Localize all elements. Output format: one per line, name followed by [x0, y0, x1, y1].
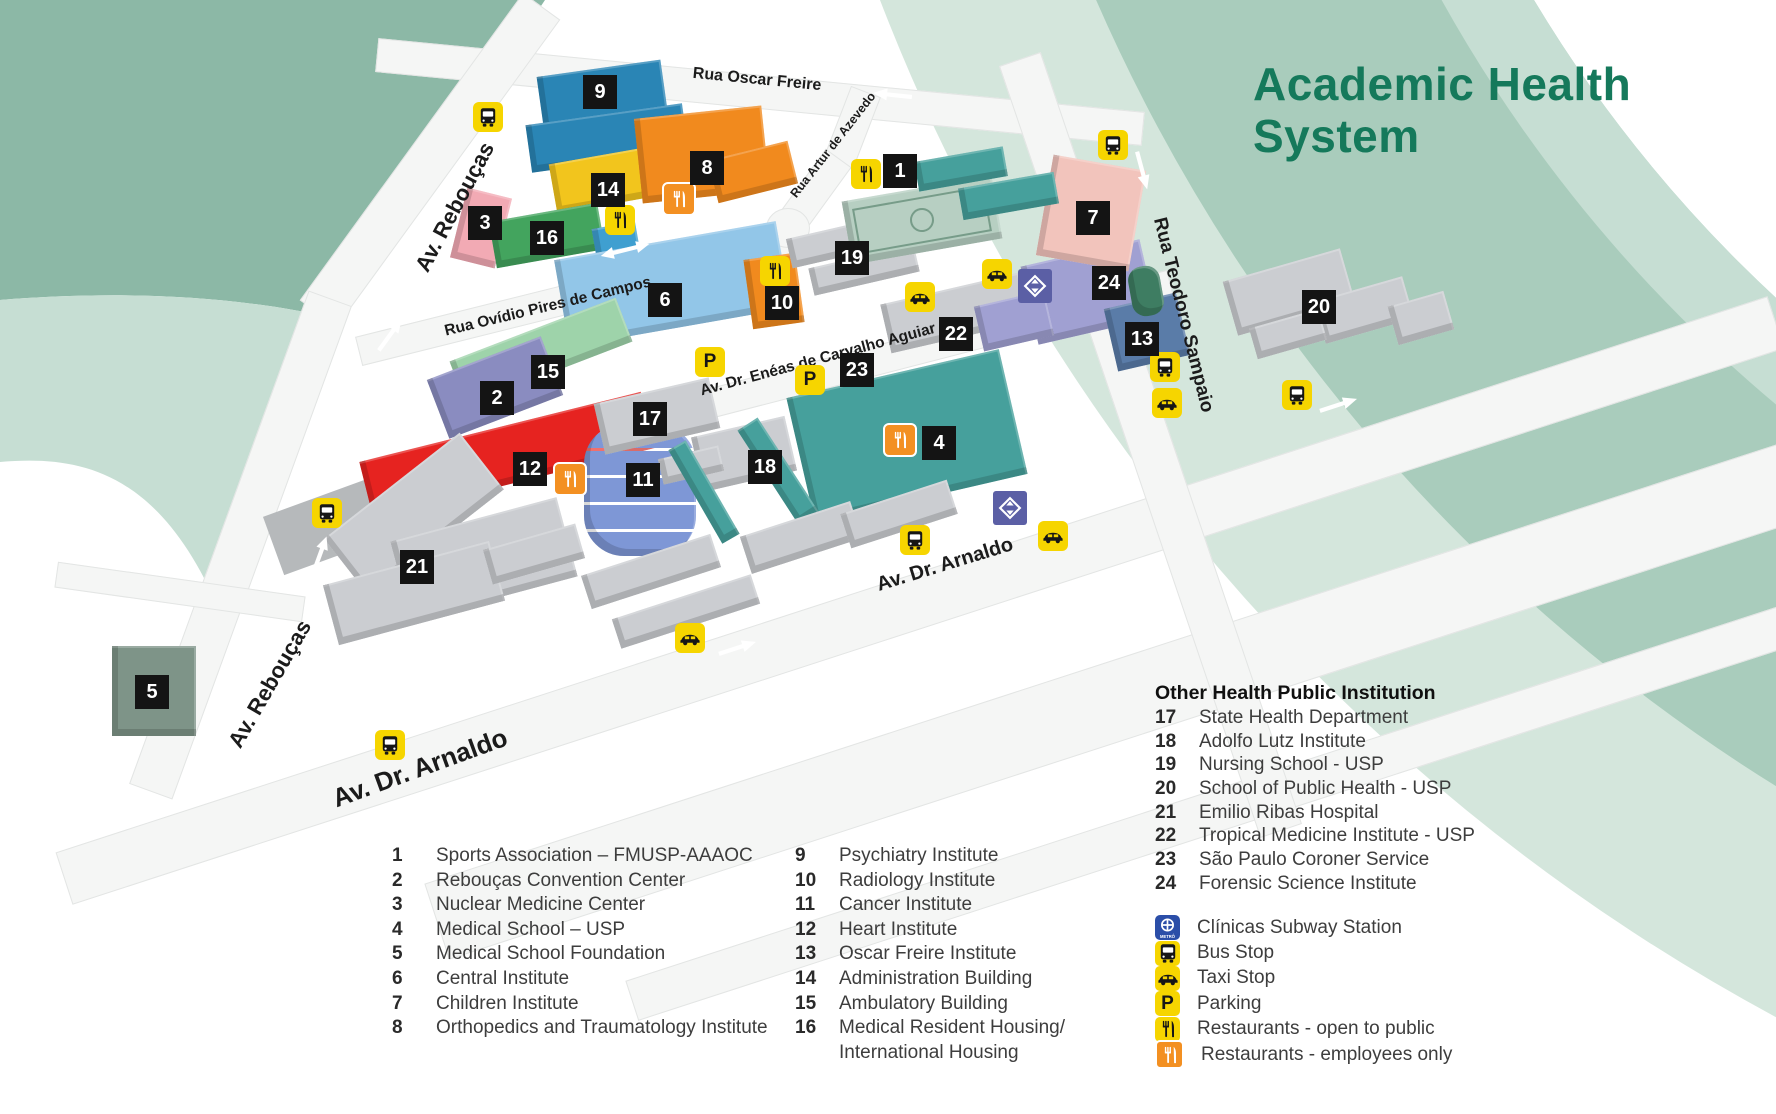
restaurant-staff-icon [1155, 1040, 1184, 1069]
legend-item-9: 9Psychiatry Institute [795, 845, 1065, 870]
legend-item-label: Medical School Foundation [436, 943, 665, 965]
legend-section-title: Other Health Public Institution [1155, 682, 1475, 707]
legend-item-label: Adolfo Lutz Institute [1199, 731, 1366, 753]
street-road-segment [54, 562, 305, 623]
legend-item-number: 17 [1155, 707, 1199, 729]
legend-item-18: 18Adolfo Lutz Institute [1155, 731, 1475, 755]
map-marker-20: 20 [1302, 290, 1336, 324]
legend-key-parking: PParking [1155, 991, 1452, 1016]
legend-item-1: 1Sports Association – FMUSP-AAAOC [392, 845, 768, 870]
map-marker-6: 6 [648, 283, 682, 317]
restaurant-staff-icon [662, 182, 696, 216]
legend-item-number: 10 [795, 870, 839, 892]
taxi-stop-icon [982, 259, 1012, 289]
legend-item-number: 3 [392, 894, 436, 916]
legend-item-2: 2Rebouças Convention Center [392, 870, 768, 895]
map-marker-21: 21 [400, 550, 434, 584]
legend-item-4: 4Medical School – USP [392, 919, 768, 944]
legend-item-label: Medical Resident Housing/ [839, 1017, 1065, 1039]
map-marker-2: 2 [480, 381, 514, 415]
taxi-stop-icon [1152, 388, 1182, 418]
direction-arrow-icon [1316, 392, 1360, 417]
page-title: Academic Health System [1253, 58, 1653, 163]
legend-key-label: Clínicas Subway Station [1197, 917, 1402, 939]
legend-item-number: 7 [392, 993, 436, 1015]
legend-key-label: Parking [1197, 993, 1261, 1015]
legend-key-subway-legend: METRÔClínicas Subway Station [1155, 915, 1452, 940]
legend-item-15: 15Ambulatory Building [795, 993, 1065, 1018]
bus-stop-icon [375, 730, 405, 760]
bus-stop-icon [1150, 352, 1180, 382]
legend-column-other-institutions: Other Health Public Institution17State H… [1155, 682, 1475, 897]
legend-item-number: 14 [795, 968, 839, 990]
legend-item-6: 6Central Institute [392, 968, 768, 993]
legend-item-8: 8Orthopedics and Traumatology Institute [392, 1017, 768, 1042]
map-marker-14: 14 [591, 173, 625, 207]
legend-item-number: 13 [795, 943, 839, 965]
legend-item-number: 2 [392, 870, 436, 892]
legend-item-16: 16Medical Resident Housing/ [795, 1017, 1065, 1042]
legend-key-rest-public: Restaurants - open to public [1155, 1017, 1452, 1042]
subway-station-icon [1018, 269, 1052, 303]
restaurant-staff-icon [883, 423, 917, 457]
map-marker-5: 5 [135, 675, 169, 709]
map-marker-16: 16 [530, 221, 564, 255]
legend-key-rest-staff: Restaurants - employees only [1155, 1042, 1452, 1067]
legend-item-3: 3Nuclear Medicine Center [392, 894, 768, 919]
legend-item-22: 22Tropical Medicine Institute - USP [1155, 825, 1475, 849]
legend-item-label: Emilio Ribas Hospital [1199, 802, 1379, 824]
legend-item-label: Nuclear Medicine Center [436, 894, 645, 916]
legend-key-label: Restaurants - employees only [1201, 1044, 1452, 1066]
map-marker-1: 1 [883, 154, 917, 188]
map-marker-8: 8 [690, 151, 724, 185]
legend-item-number: 20 [1155, 778, 1199, 800]
legend-item-number: 23 [1155, 849, 1199, 871]
legend-item-number: 22 [1155, 825, 1199, 847]
legend-item-label: São Paulo Coroner Service [1199, 849, 1429, 871]
legend-item-number: 16 [795, 1017, 839, 1039]
taxi-stop-icon [905, 282, 935, 312]
parking-icon: P [795, 365, 825, 395]
legend-item-number: 11 [795, 894, 839, 916]
map-marker-18: 18 [748, 450, 782, 484]
legend-item-number: 12 [795, 919, 839, 941]
legend-item-label: School of Public Health - USP [1199, 778, 1451, 800]
legend-key-label: Restaurants - open to public [1197, 1018, 1435, 1040]
legend-key-bus: Bus Stop [1155, 940, 1452, 965]
restaurant-public-icon [605, 205, 635, 235]
taxi-stop-icon [675, 623, 705, 653]
legend-item-17: 17State Health Department [1155, 707, 1475, 731]
map-marker-13: 13 [1125, 322, 1159, 356]
legend-column-1: 1Sports Association – FMUSP-AAAOC2Rebouç… [392, 845, 768, 1042]
map-marker-11: 11 [626, 463, 660, 497]
map-marker-7: 7 [1076, 201, 1110, 235]
parking-icon: P [1155, 991, 1180, 1016]
legend-item-label: Children Institute [436, 993, 579, 1015]
legend-item-21: 21Emilio Ribas Hospital [1155, 802, 1475, 826]
legend-item-number: 1 [392, 845, 436, 867]
legend-item-label: Tropical Medicine Institute - USP [1199, 825, 1475, 847]
legend-item-11: 11Cancer Institute [795, 894, 1065, 919]
legend-item-number: 15 [795, 993, 839, 1015]
legend-item-label: Psychiatry Institute [839, 845, 998, 867]
map-marker-10: 10 [765, 286, 799, 320]
legend-item-label: Heart Institute [839, 919, 957, 941]
map-marker-9: 9 [583, 75, 617, 109]
bus-stop-icon [1155, 941, 1180, 966]
bus-stop-icon [900, 525, 930, 555]
legend-key-label: Bus Stop [1197, 942, 1274, 964]
bus-stop-icon [473, 102, 503, 132]
legend-item-label: Oscar Freire Institute [839, 943, 1016, 965]
bus-stop-icon [312, 498, 342, 528]
legend-item-label: Radiology Institute [839, 870, 995, 892]
legend-item-number: 19 [1155, 754, 1199, 776]
subway-station-icon [993, 491, 1027, 525]
legend-item-label: Orthopedics and Traumatology Institute [436, 1017, 768, 1039]
street-label-7: Av. Rebouças [223, 616, 317, 753]
legend-item-label: Cancer Institute [839, 894, 972, 916]
legend-item-23: 23São Paulo Coroner Service [1155, 849, 1475, 873]
map-marker-22: 22 [939, 317, 973, 351]
legend-item-16-line2: International Housing [795, 1042, 1065, 1067]
legend-key-label: Taxi Stop [1197, 967, 1275, 989]
legend-item-label: Medical School – USP [436, 919, 625, 941]
legend-item-number: 18 [1155, 731, 1199, 753]
legend-item-number: 8 [392, 1017, 436, 1039]
taxi-stop-icon [1155, 966, 1180, 991]
legend-key-taxi: Taxi Stop [1155, 966, 1452, 991]
legend-item-number: 24 [1155, 873, 1199, 895]
legend-item-label: International Housing [839, 1042, 1019, 1064]
legend-item-label: Nursing School - USP [1199, 754, 1384, 776]
map-marker-4: 4 [922, 426, 956, 460]
map-marker-3: 3 [468, 206, 502, 240]
legend-item-label: Rebouças Convention Center [436, 870, 685, 892]
legend-item-24: 24Forensic Science Institute [1155, 873, 1475, 897]
restaurant-staff-icon [553, 462, 587, 496]
legend-item-19: 19Nursing School - USP [1155, 754, 1475, 778]
legend-icon-key: METRÔClínicas Subway StationBus StopTaxi… [1155, 915, 1452, 1067]
subway-station-icon: METRÔ [1155, 915, 1180, 940]
map-marker-15: 15 [531, 355, 565, 389]
legend-item-label: Central Institute [436, 968, 569, 990]
legend-item-label: Sports Association – FMUSP-AAAOC [436, 845, 753, 867]
legend-item-20: 20School of Public Health - USP [1155, 778, 1475, 802]
legend-item-12: 12Heart Institute [795, 919, 1065, 944]
restaurant-public-icon [760, 256, 790, 286]
restaurant-public-icon [1155, 1017, 1180, 1042]
bus-stop-icon [1098, 130, 1128, 160]
legend-item-10: 10Radiology Institute [795, 870, 1065, 895]
legend-item-number: 6 [392, 968, 436, 990]
legend-item-7: 7Children Institute [392, 993, 768, 1018]
restaurant-public-icon [851, 159, 881, 189]
legend-item-label: Ambulatory Building [839, 993, 1008, 1015]
legend-item-14: 14Administration Building [795, 968, 1065, 993]
legend-item-number: 5 [392, 943, 436, 965]
legend-column-2: 9Psychiatry Institute10Radiology Institu… [795, 845, 1065, 1066]
legend-item-13: 13Oscar Freire Institute [795, 943, 1065, 968]
map-marker-12: 12 [513, 452, 547, 486]
legend-item-number: 9 [795, 845, 839, 867]
map-marker-19: 19 [835, 241, 869, 275]
bus-stop-icon [1282, 380, 1312, 410]
campus-map-page: PP12345678910111213141516171819202122232… [0, 0, 1776, 1114]
map-marker-17: 17 [633, 402, 667, 436]
legend-item-number: 21 [1155, 802, 1199, 824]
legend-item-label: Forensic Science Institute [1199, 873, 1417, 895]
map-marker-24: 24 [1092, 266, 1126, 300]
legend-item-number: 4 [392, 919, 436, 941]
legend-item-label: Administration Building [839, 968, 1032, 990]
parking-icon: P [695, 347, 725, 377]
taxi-stop-icon [1038, 521, 1068, 551]
legend-item-5: 5Medical School Foundation [392, 943, 768, 968]
map-marker-23: 23 [840, 353, 874, 387]
svg-text:METRÔ: METRÔ [1160, 934, 1176, 939]
legend-item-label: State Health Department [1199, 707, 1408, 729]
